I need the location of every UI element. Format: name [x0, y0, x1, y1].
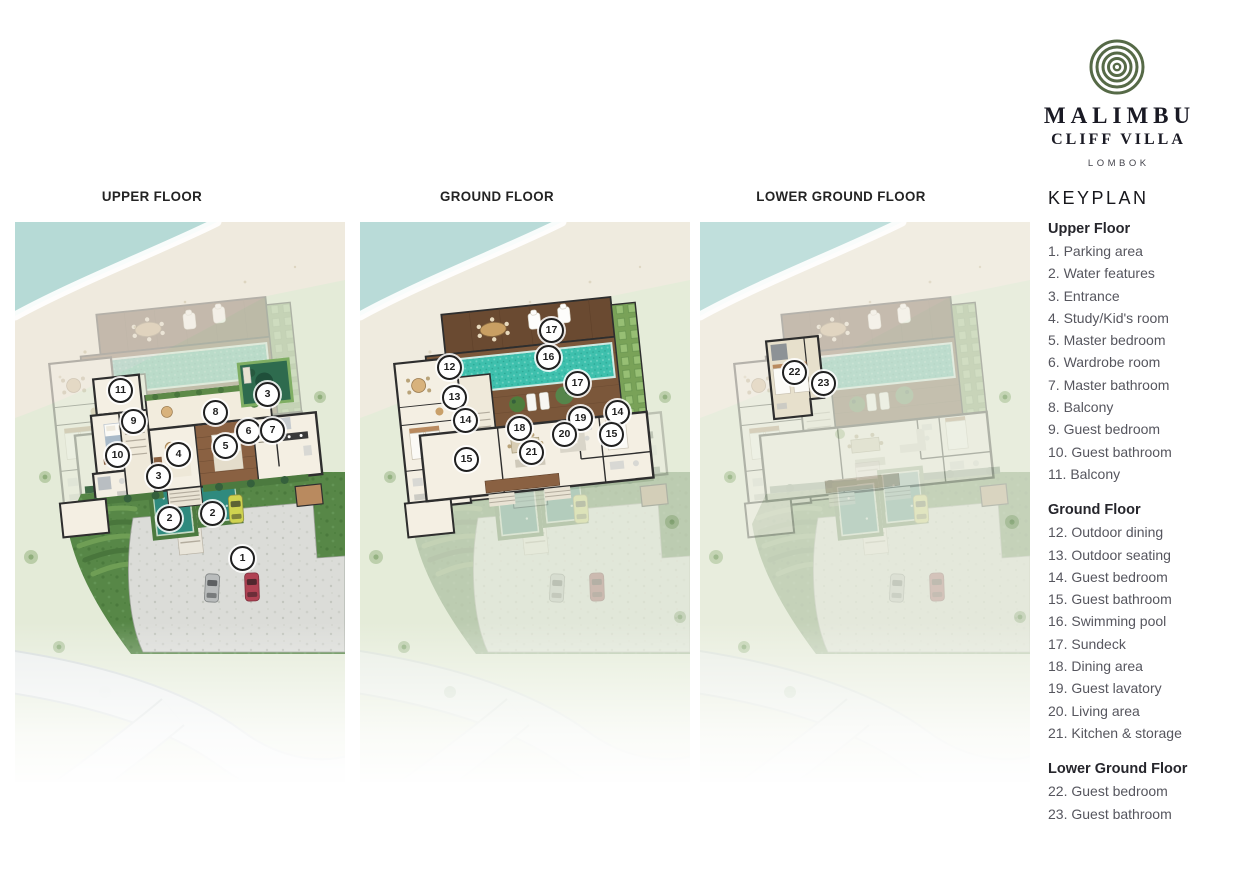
brand-location: LOMBOK [1032, 158, 1202, 169]
ground-floor-plan-illustration [360, 222, 690, 782]
floor-plan-panel-lower-ground: 2223 [700, 222, 1030, 782]
logo-rings-icon [1088, 38, 1146, 96]
lower-ground-floor-plan-illustration [700, 222, 1030, 782]
keyplan-item: 7. Master bathroom [1048, 374, 1238, 396]
keyplan-item: 20. Living area [1048, 700, 1238, 722]
keyplan-section-heading: Upper Floor [1048, 218, 1238, 240]
keyplan-item: 11. Balcony [1048, 463, 1238, 485]
floor-plan-panel-ground: 17161712131415181920211415 [360, 222, 690, 782]
keyplan-title: KEYPLAN [1048, 188, 1238, 209]
floor-plan-panel-upper: 119103834567221 [15, 222, 345, 782]
keyplan-item: 4. Study/Kid's room [1048, 307, 1238, 329]
keyplan-item: 17. Sundeck [1048, 633, 1238, 655]
keyplan-item: 1. Parking area [1048, 240, 1238, 262]
keyplan-item: 2. Water features [1048, 262, 1238, 284]
brand-subtitle: CLIFF VILLA [1032, 131, 1202, 149]
floorplan-sheet: MALIMBU CLIFF VILLA LOMBOK UPPER FLOOR G… [0, 0, 1250, 884]
keyplan-legend: KEYPLAN Upper Floor1. Parking area2. Wat… [1048, 188, 1238, 825]
keyplan-item: 8. Balcony [1048, 396, 1238, 418]
keyplan-item: 9. Guest bedroom [1048, 418, 1238, 440]
keyplan-item: 6. Wardrobe room [1048, 351, 1238, 373]
keyplan-section-heading: Ground Floor [1048, 499, 1238, 521]
panel-title-upper-floor: UPPER FLOOR [102, 188, 202, 204]
keyplan-item: 14. Guest bedroom [1048, 566, 1238, 588]
keyplan-item: 19. Guest lavatory [1048, 677, 1238, 699]
upper-floor-plan-illustration [15, 222, 345, 782]
keyplan-sections: Upper Floor1. Parking area2. Water featu… [1048, 218, 1238, 825]
brand-logo: MALIMBU CLIFF VILLA LOMBOK [1032, 38, 1202, 169]
keyplan-item: 15. Guest bathroom [1048, 588, 1238, 610]
keyplan-item: 21. Kitchen & storage [1048, 722, 1238, 744]
brand-name: MALIMBU [1032, 103, 1202, 129]
keyplan-item: 13. Outdoor seating [1048, 544, 1238, 566]
keyplan-item: 22. Guest bedroom [1048, 780, 1238, 802]
panel-title-ground-floor: GROUND FLOOR [440, 188, 554, 204]
keyplan-item: 5. Master bedroom [1048, 329, 1238, 351]
keyplan-item: 3. Entrance [1048, 285, 1238, 307]
keyplan-item: 12. Outdoor dining [1048, 521, 1238, 543]
keyplan-item: 18. Dining area [1048, 655, 1238, 677]
keyplan-section-heading: Lower Ground Floor [1048, 758, 1238, 780]
keyplan-item: 10. Guest bathroom [1048, 441, 1238, 463]
keyplan-item: 23. Guest bathroom [1048, 803, 1238, 825]
keyplan-item: 16. Swimming pool [1048, 610, 1238, 632]
panel-title-lower-ground-floor: LOWER GROUND FLOOR [756, 188, 925, 204]
